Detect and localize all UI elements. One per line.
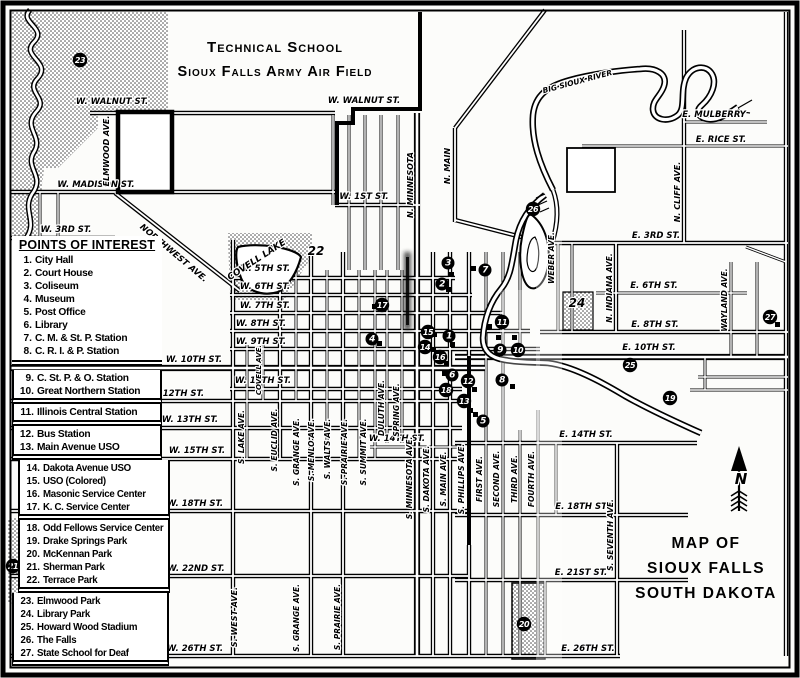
legend-item-number: 22.: [20, 574, 40, 587]
street-label: S. MAIN AVE.: [439, 452, 448, 507]
legend-item-label: C. St. P. & O. Station: [37, 373, 129, 384]
scan-artifact: [404, 252, 411, 330]
legend-item-number: 11.: [14, 406, 34, 419]
legend-item-label: Post Office: [35, 307, 85, 318]
street-label: S. PHILLIPS AVE.: [457, 444, 466, 514]
poi-marker: 9: [494, 344, 507, 357]
street-label: E. 26TH ST.: [561, 644, 614, 654]
street-label: W. 11TH ST.: [235, 376, 291, 386]
legend-item-label: C. M. & St. P. Station: [35, 333, 127, 344]
legend-item: 1.City Hall: [12, 254, 162, 267]
poi-marker: 5: [477, 415, 490, 428]
street-label: E. 10TH ST.: [622, 343, 675, 353]
poi-marker: 7: [479, 264, 492, 277]
street-label: BIG SIOUX RIVER: [542, 68, 614, 95]
street-label: S. PRAIRIE AVE.: [340, 419, 349, 485]
legend-item: 6.Library: [12, 319, 162, 332]
street-label: THIRD AVE.: [510, 455, 519, 503]
poi-marker: 1: [443, 330, 456, 343]
legend-item-label: Sherman Park: [43, 562, 105, 573]
svg-text:9: 9: [497, 346, 503, 356]
building-footprint: [510, 384, 515, 389]
top-title-line2: Sioux Falls Army Air Field: [80, 60, 470, 84]
svg-text:21: 21: [8, 562, 18, 571]
svg-text:17: 17: [377, 301, 388, 310]
street-label: FIRST AVE.: [475, 456, 484, 502]
street-label: W. 8TH ST.: [236, 319, 286, 329]
street-label: N. INDIANA AVE.: [605, 253, 614, 322]
poi-marker: 3: [442, 257, 455, 270]
street-label: S. LAKE AVE.: [237, 410, 246, 464]
legend-item: 22.Terrace Park: [20, 574, 168, 587]
legend-item-number: 25.: [14, 621, 34, 634]
legend-item-label: The Falls: [37, 635, 76, 646]
street-label: N. CLIFF AVE.: [673, 162, 682, 223]
legend-item-label: Main Avenue USO: [37, 442, 120, 453]
legend-item: 4.Museum: [12, 293, 162, 306]
street-label: W. 7TH ST.: [240, 301, 290, 311]
street-label: E. 3RD ST.: [632, 231, 680, 241]
legend-item-number: 18.: [20, 522, 40, 535]
svg-text:12: 12: [463, 377, 474, 386]
legend-group: 14.Dakota Avenue USO15.USO (Colored)16.M…: [18, 460, 170, 520]
svg-text:19: 19: [665, 394, 676, 403]
svg-text:26: 26: [528, 205, 539, 214]
park-number: 22: [308, 244, 325, 258]
legend-item: 15.USO (Colored): [20, 475, 168, 488]
legend-item-number: 6.: [12, 319, 32, 332]
street-label: W. 22ND ST.: [167, 564, 225, 574]
legend-group: 12.Bus Station13.Main Avenue USO: [12, 426, 162, 460]
svg-text:16: 16: [435, 353, 446, 362]
street-label: W. 26TH ST.: [167, 644, 223, 654]
legend-group: 18.Odd Fellows Service Center19.Drake Sp…: [18, 520, 170, 593]
street-label: S. WALTS AVE.: [323, 419, 332, 479]
bottom-title-line3: SOUTH DAKOTA: [598, 581, 800, 606]
legend-item: 19.Drake Springs Park: [20, 535, 168, 548]
poi-marker: 11: [495, 315, 509, 329]
legend-item-label: Dakota Avenue USO: [43, 463, 131, 474]
street-label: FOURTH AVE.: [527, 451, 536, 507]
building-footprint: [473, 412, 478, 417]
legend-item-label: State School for Deaf: [37, 648, 129, 659]
street-label: E. 8TH ST.: [631, 320, 679, 330]
legend-item-number: 15.: [20, 475, 40, 488]
street-label: S. MINNESOTA AVE.: [405, 437, 414, 520]
legend-item-label: K. C. Service Center: [43, 502, 130, 513]
street-label: SPRING AVE.: [392, 383, 401, 437]
building-footprint: [512, 335, 517, 340]
legend-item-number: 16.: [20, 488, 40, 501]
building-footprint: [487, 324, 492, 329]
street-label: W. 6TH ST.: [240, 282, 290, 292]
street-label: W. MADISON ST.: [57, 180, 134, 190]
poi-marker: 27: [763, 310, 777, 324]
sioux-falls-map: W. WALNUT ST.W. WALNUT ST.W. MADISON ST.…: [0, 0, 800, 678]
legend-item-number: 10.: [14, 385, 34, 398]
legend-item-label: USO (Colored): [43, 476, 106, 487]
legend-item-label: Howard Wood Stadium: [37, 622, 137, 633]
street-label: DULUTH AVE.: [377, 380, 386, 436]
legend-item-number: 9.: [14, 372, 34, 385]
legend-item: 5.Post Office: [12, 306, 162, 319]
poi-marker: 14: [418, 340, 432, 354]
svg-text:6: 6: [449, 371, 455, 381]
street-label: WEBER AVE.: [547, 232, 556, 284]
legend-item: 7.C. M. & St. P. Station: [12, 332, 162, 345]
paper-crease-light-2: [500, 290, 540, 440]
street-label: W. 15TH ST.: [169, 446, 225, 456]
legend-item: 20.McKennan Park: [20, 548, 168, 561]
north-arrow: N: [731, 446, 748, 511]
legend-header: POINTS OF INTEREST: [12, 238, 162, 252]
poi-marker: 20: [517, 617, 531, 631]
poi-marker: 2: [436, 278, 449, 291]
street-label: S. SUMMIT AVE.: [359, 419, 368, 486]
svg-text:10: 10: [513, 346, 524, 355]
poi-marker: 10: [511, 343, 525, 357]
street-label: WAYLAND AVE.: [720, 268, 729, 331]
street-label: COVELL AVE.: [255, 345, 263, 395]
street-label: E. 18TH ST.: [555, 502, 608, 512]
building-footprint: [468, 408, 473, 413]
legend-item-number: 13.: [14, 441, 34, 454]
legend-item: 17.K. C. Service Center: [20, 501, 168, 514]
poi-marker: 6: [446, 369, 459, 382]
building-footprint: [775, 322, 780, 327]
street-label: W. 1ST ST.: [339, 192, 388, 202]
legend-item-number: 21.: [20, 561, 40, 574]
bottom-title-line1: MAP OF: [598, 531, 800, 556]
legend-item: 8.C. R. I. & P. Station: [12, 345, 162, 358]
building-footprint: [471, 266, 476, 271]
map-bottom-title: MAP OF SIOUX FALLS SOUTH DAKOTA: [598, 531, 800, 606]
poi-marker: 15: [421, 325, 435, 339]
svg-text:15: 15: [423, 328, 434, 337]
legend-item-number: 5.: [12, 306, 32, 319]
poi-marker: 4: [366, 333, 379, 346]
legend-item-number: 19.: [20, 535, 40, 548]
street-label: S. MENLO AVE.: [307, 419, 316, 481]
building-footprint: [472, 387, 477, 392]
svg-text:25: 25: [625, 361, 636, 370]
legend-group: POINTS OF INTEREST1.City Hall2.Court Hou…: [12, 236, 162, 366]
svg-text:4: 4: [368, 335, 375, 345]
north-label: N: [735, 470, 748, 488]
rice-street-block: [567, 148, 615, 192]
north-arrow-head: [731, 446, 747, 471]
legend-item-label: Museum: [35, 294, 75, 305]
poi-marker: 16: [433, 350, 447, 364]
street-label: W. WALNUT ST.: [328, 96, 400, 106]
legend-item-label: Bus Station: [37, 429, 90, 440]
street-label: W. 3RD ST.: [40, 225, 91, 235]
legend-item-label: Great Northern Station: [37, 386, 140, 397]
legend-item-number: 14.: [20, 462, 40, 475]
legend-item-number: 20.: [20, 548, 40, 561]
legend-item-number: 26.: [14, 634, 34, 647]
legend-item-label: Drake Springs Park: [43, 536, 127, 547]
legend-item-number: 17.: [20, 501, 40, 514]
legend-item: 9.C. St. P. & O. Station: [14, 372, 160, 385]
svg-text:2: 2: [439, 280, 445, 290]
poi-marker: 26: [526, 202, 540, 216]
street-label: S. EUCLID AVE.: [270, 408, 279, 471]
street-label: S. DAKOTA AVE.: [422, 446, 431, 513]
street-label: W. 18TH ST.: [167, 499, 223, 509]
street-label: E. MULBERRY: [682, 110, 746, 120]
bottom-title-line2: SIOUX FALLS: [598, 556, 800, 581]
svg-text:8: 8: [499, 376, 505, 386]
street-label: S. GRANGE AVE.: [292, 418, 301, 486]
legend-item: 18.Odd Fellows Service Center: [20, 522, 168, 535]
legend-item-label: Masonic Service Center: [43, 489, 146, 500]
poi-marker: 18: [439, 383, 453, 397]
legend-item-number: 27.: [14, 647, 34, 660]
legend-item: 23.Elmwood Park: [14, 595, 167, 608]
legend-group: 9.C. St. P. & O. Station10.Great Norther…: [12, 370, 162, 404]
street-label: W. 10TH ST.: [166, 355, 222, 365]
legend-item-number: 24.: [14, 608, 34, 621]
legend-item-label: Library: [35, 320, 67, 331]
street-label: N. MAIN: [443, 148, 452, 185]
legend-item: 26.The Falls: [14, 634, 167, 647]
poi-marker: 8: [496, 374, 509, 387]
legend-item-number: 3.: [12, 280, 32, 293]
building-footprint: [496, 335, 501, 340]
legend-item: 2.Court House: [12, 267, 162, 280]
svg-text:14: 14: [420, 343, 431, 352]
legend-item-label: C. R. I. & P. Station: [35, 346, 119, 357]
svg-text:27: 27: [765, 313, 776, 322]
legend-item-label: City Hall: [35, 255, 73, 266]
legend-item-label: Elmwood Park: [37, 596, 100, 607]
svg-text:13: 13: [459, 397, 470, 406]
street-label: S. GRANGE AVE.: [292, 584, 301, 652]
street-label: SECOND AVE.: [492, 451, 501, 508]
street-label: W. WALNUT ST.: [76, 97, 148, 107]
street-label: S. PRAIRIE AVE.: [333, 584, 342, 650]
building-footprint: [450, 342, 455, 347]
legend-item: 10.Great Northern Station: [14, 385, 160, 398]
legend-item-number: 8.: [12, 345, 32, 358]
svg-text:5: 5: [480, 417, 486, 427]
legend-item: 11.Illinois Central Station: [14, 406, 160, 419]
legend-item-number: 1.: [12, 254, 32, 267]
svg-text:3: 3: [445, 259, 451, 269]
legend-item-label: Court House: [35, 268, 93, 279]
legend-item-number: 4.: [12, 293, 32, 306]
svg-text:18: 18: [441, 386, 452, 395]
legend-item-number: 23.: [14, 595, 34, 608]
poi-marker: 13: [457, 394, 471, 408]
park-number: 24: [569, 296, 586, 310]
building-footprint: [449, 272, 454, 277]
legend-item: 25.Howard Wood Stadium: [14, 621, 167, 634]
street-label: E. RICE ST.: [696, 135, 746, 145]
svg-text:20: 20: [519, 620, 530, 629]
street-label: N. MINNESOTA: [406, 152, 415, 218]
poi-marker: 17: [375, 298, 389, 312]
legend-item: 24.Library Park: [14, 608, 167, 621]
street-label: E. 14TH ST.: [559, 430, 612, 440]
legend-group: 23.Elmwood Park24.Library Park25.Howard …: [12, 593, 169, 666]
street-label: W. 13TH ST.: [162, 415, 218, 425]
map-top-title: Technical School Sioux Falls Army Air Fi…: [80, 36, 470, 84]
legend-item: 16.Masonic Service Center: [20, 488, 168, 501]
svg-text:11: 11: [497, 318, 507, 327]
svg-text:1: 1: [446, 332, 452, 342]
legend-item-label: Coliseum: [35, 281, 78, 292]
legend-item-label: Illinois Central Station: [37, 407, 137, 418]
legend-item: 27.State School for Deaf: [14, 647, 167, 660]
legend-group: 11.Illinois Central Station: [12, 404, 162, 426]
legend-item: 13.Main Avenue USO: [14, 441, 160, 454]
poi-marker: 12: [461, 374, 475, 388]
street-label: S. WEST AVE.: [230, 587, 239, 647]
legend-item: 21.Sherman Park: [20, 561, 168, 574]
poi-marker: 25: [623, 358, 637, 372]
legend-item-number: 12.: [14, 428, 34, 441]
legend-item-number: 2.: [12, 267, 32, 280]
street-label: ELMWOOD AVE.: [102, 116, 111, 187]
legend-item: 12.Bus Station: [14, 428, 160, 441]
legend-item-number: 7.: [12, 332, 32, 345]
legend-item-label: Library Park: [37, 609, 90, 620]
legend-item-label: Terrace Park: [43, 575, 97, 586]
top-title-line1: Technical School: [80, 36, 470, 60]
poi-marker: 19: [663, 391, 677, 405]
legend-item-label: Odd Fellows Service Center: [43, 523, 163, 534]
legend-item: 14.Dakota Avenue USO: [20, 462, 168, 475]
legend-item: 3.Coliseum: [12, 280, 162, 293]
legend-item-label: McKennan Park: [43, 549, 112, 560]
street-label: E. 6TH ST.: [630, 281, 678, 291]
